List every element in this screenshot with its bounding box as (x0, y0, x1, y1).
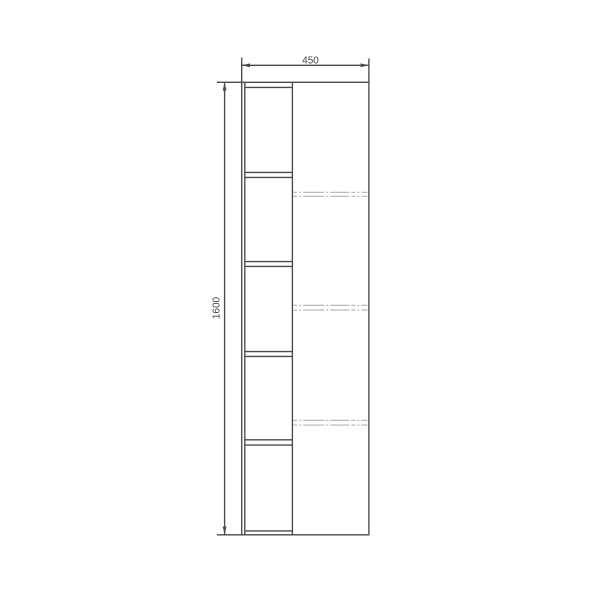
svg-text:450: 450 (302, 56, 319, 67)
svg-text:1600: 1600 (212, 296, 223, 319)
